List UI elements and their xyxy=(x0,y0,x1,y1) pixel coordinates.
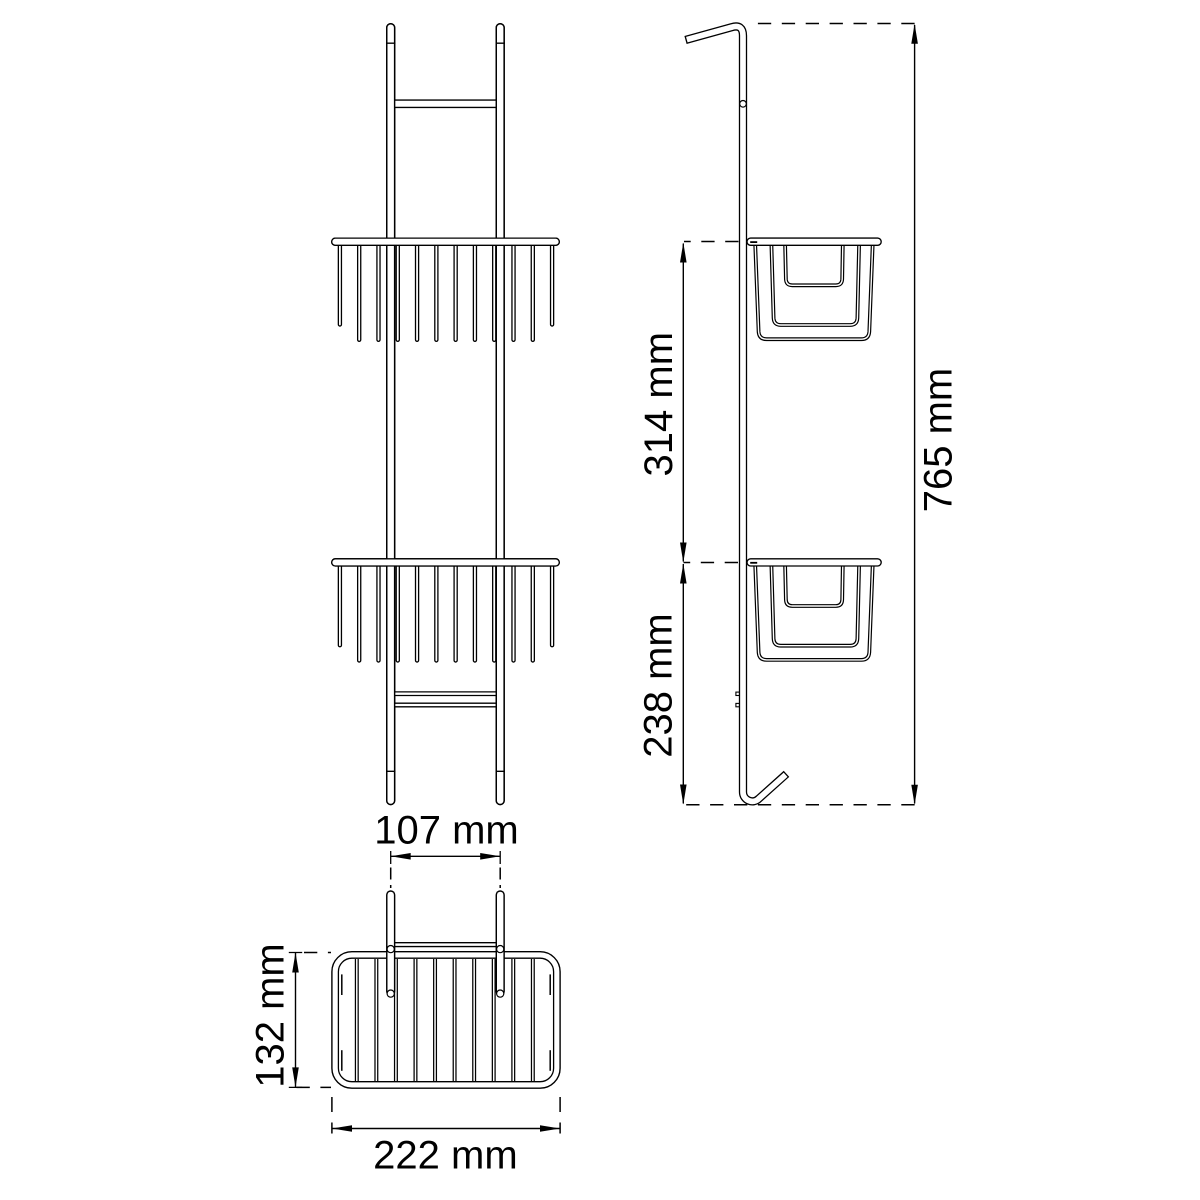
svg-text:238 mm: 238 mm xyxy=(637,613,681,758)
svg-text:107 mm: 107 mm xyxy=(374,808,519,852)
svg-text:132 mm: 132 mm xyxy=(249,943,293,1088)
svg-text:765 mm: 765 mm xyxy=(917,368,961,513)
svg-text:222 mm: 222 mm xyxy=(373,1134,518,1178)
svg-text:314 mm: 314 mm xyxy=(637,332,681,477)
